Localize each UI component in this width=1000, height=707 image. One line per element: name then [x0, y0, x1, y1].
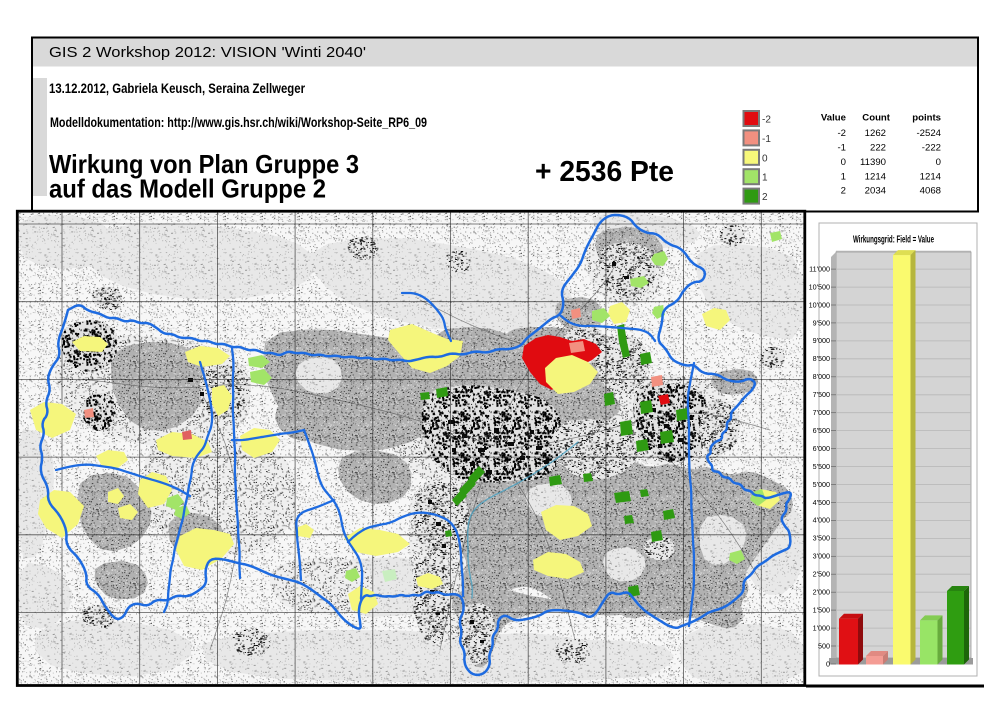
svg-text:1'500: 1'500 [813, 605, 830, 614]
svg-text:6'500: 6'500 [813, 426, 830, 435]
svg-text:5'000: 5'000 [813, 480, 830, 489]
svg-text:0: 0 [841, 157, 846, 168]
svg-text:2'000: 2'000 [813, 588, 830, 597]
svg-text:2: 2 [841, 186, 846, 197]
svg-text:2034: 2034 [865, 186, 887, 197]
svg-text:-2: -2 [837, 128, 846, 139]
svg-text:5'500: 5'500 [813, 462, 830, 471]
svg-text:Value: Value [821, 113, 846, 124]
svg-text:1214: 1214 [865, 171, 887, 182]
svg-text:4'500: 4'500 [813, 498, 830, 507]
svg-text:3'000: 3'000 [813, 552, 830, 561]
svg-text:1'000: 1'000 [813, 623, 830, 632]
svg-text:500: 500 [818, 641, 830, 650]
svg-text:0: 0 [762, 153, 768, 164]
svg-text:1: 1 [762, 173, 768, 184]
svg-text:1: 1 [841, 171, 846, 182]
svg-text:11'000: 11'000 [809, 264, 830, 273]
svg-text:Modelldokumentation: http://ww: Modelldokumentation: http://www.gis.hsr.… [50, 114, 427, 130]
svg-text:GIS 2 Workshop 2012: VISION 'W: GIS 2 Workshop 2012: VISION 'Winti 2040' [49, 44, 366, 61]
svg-text:7'500: 7'500 [813, 390, 830, 399]
svg-text:WINTERTHUR: WINTERTHUR [448, 436, 510, 443]
svg-text:-1: -1 [762, 134, 771, 145]
svg-text:0: 0 [936, 157, 941, 168]
svg-text:points: points [912, 113, 941, 124]
svg-text:-2: -2 [762, 115, 771, 126]
svg-text:auf das Modell Gruppe 2: auf das Modell Gruppe 2 [49, 174, 326, 204]
svg-text:4'000: 4'000 [813, 516, 830, 525]
svg-text:9'500: 9'500 [813, 318, 830, 327]
svg-text:222: 222 [870, 143, 886, 154]
svg-text:2'500: 2'500 [813, 570, 830, 579]
svg-text:-1: -1 [837, 143, 846, 154]
svg-text:10'500: 10'500 [809, 282, 830, 291]
svg-text:0: 0 [826, 659, 830, 668]
svg-text:Count: Count [862, 113, 891, 124]
svg-text:8'000: 8'000 [813, 372, 830, 381]
svg-text:13.12.2012, Gabriela Keusch, S: 13.12.2012, Gabriela Keusch, Seraina Zel… [49, 80, 305, 96]
svg-text:4068: 4068 [920, 186, 941, 197]
svg-text:1214: 1214 [920, 171, 942, 182]
svg-text:2: 2 [762, 192, 768, 203]
svg-text:11390: 11390 [860, 157, 886, 168]
svg-text:3'500: 3'500 [813, 534, 830, 543]
svg-text:9'000: 9'000 [813, 336, 830, 345]
svg-text:8'500: 8'500 [813, 354, 830, 363]
svg-text:+ 2536 Pte: + 2536 Pte [535, 156, 674, 188]
svg-text:Wirkungsgrid: Field = Value: Wirkungsgrid: Field = Value [853, 234, 934, 246]
svg-text:6'000: 6'000 [813, 444, 830, 453]
svg-text:-2524: -2524 [916, 128, 941, 139]
svg-text:7'000: 7'000 [813, 408, 830, 417]
svg-text:10'000: 10'000 [809, 300, 830, 309]
svg-text:1262: 1262 [865, 128, 886, 139]
svg-text:-222: -222 [922, 143, 941, 154]
